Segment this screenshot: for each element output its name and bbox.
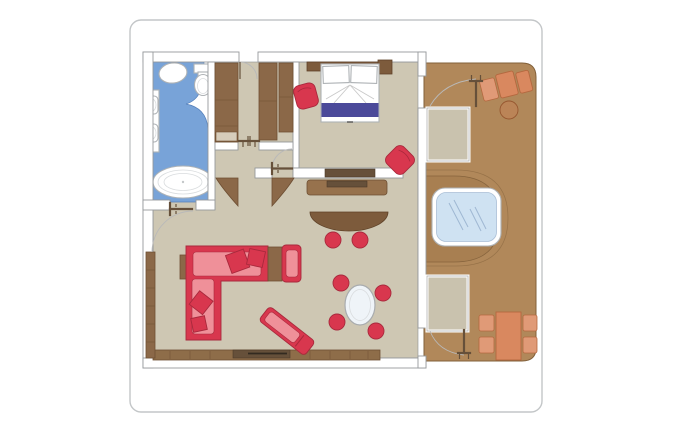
wall-hall-bedroom	[293, 62, 299, 168]
sofa-pillow-2	[247, 249, 266, 268]
outdoor-chair-4	[523, 337, 537, 353]
wall-top-right	[258, 52, 426, 62]
wall-right-middle	[418, 108, 426, 328]
bar-stool-2	[352, 232, 368, 248]
terrace-platform-bottom	[427, 276, 468, 331]
bathtub-drain	[182, 181, 184, 183]
floor-plan-canvas	[0, 0, 700, 433]
floor-plan	[0, 0, 700, 433]
wall-bathroom-bottom-right	[196, 200, 215, 210]
outdoor-chair-1	[479, 315, 494, 331]
dining-chair-3	[329, 314, 345, 330]
wardrobe-1-shelf	[216, 132, 237, 141]
sofa-end-table	[268, 247, 282, 281]
bar-stool-1	[325, 232, 341, 248]
outdoor-table	[496, 312, 521, 360]
sofa-pillow-4	[191, 316, 208, 333]
wall-top-left	[143, 52, 239, 62]
wall-corridor-bottom-right	[259, 142, 293, 150]
wall-bathroom-right	[208, 62, 215, 200]
living-media-console-top	[327, 181, 367, 187]
wardrobe-3	[279, 63, 293, 132]
bedroom-tv-console	[325, 169, 375, 177]
dining-chair-4	[368, 323, 384, 339]
wall-right-upper	[418, 52, 426, 76]
wall-right-lower	[418, 356, 426, 368]
outdoor-chair-2	[479, 337, 494, 353]
bed-pillow-left	[323, 66, 350, 84]
wardrobe-1	[215, 63, 238, 142]
wall-divider-stub	[255, 168, 272, 178]
dining-chair-2	[375, 285, 391, 301]
wardrobe-2	[259, 63, 277, 140]
room-bathroom	[145, 61, 213, 202]
round-side-table	[500, 101, 518, 119]
whirlpool-water	[437, 193, 497, 242]
wall-corridor-bottom-left	[215, 142, 238, 150]
living-armchair-cushion	[286, 250, 298, 277]
terrace-platform-top	[427, 108, 469, 161]
outdoor-chair-3	[523, 315, 537, 331]
wall-bathroom-bottom-left	[143, 200, 170, 210]
nightstand	[378, 60, 392, 74]
bed-pillow-right	[351, 66, 378, 84]
dining-chair-1	[333, 275, 349, 291]
bed-runner	[322, 103, 379, 117]
